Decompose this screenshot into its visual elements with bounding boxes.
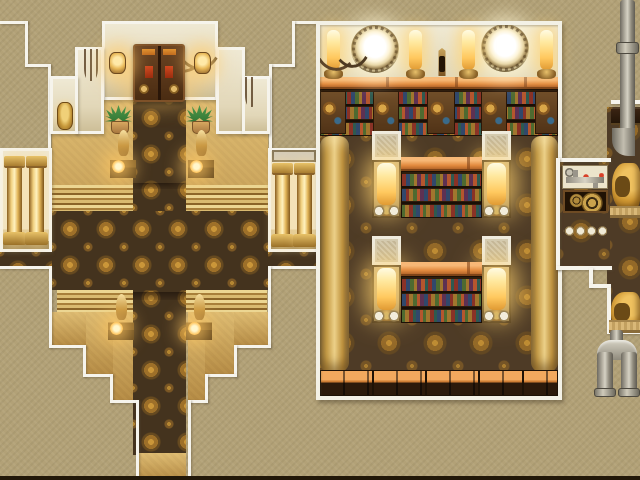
hall-border-bl-8 — [136, 400, 139, 480]
sign-frame-upper-left — [372, 131, 401, 160]
porthole-right-icon — [481, 24, 529, 72]
hall-border-bl-1 — [0, 266, 52, 269]
hall-border-br-8 — [188, 400, 191, 480]
hall-carpet-right-wing — [268, 252, 318, 266]
steam-pipe-vertical — [620, 0, 635, 146]
statue-lamp-lower-left-icon — [108, 294, 134, 340]
entry-double-door[interactable] — [133, 44, 185, 102]
wall-lamp-3-icon — [462, 30, 475, 70]
hall-border-br-3 — [234, 345, 271, 348]
gold-pillar-l2-icon — [29, 156, 44, 245]
hall-border-bl-7 — [110, 400, 139, 403]
sign-frame-lower-right — [482, 236, 511, 265]
library-desk-2[interactable] — [373, 370, 426, 396]
hall-border-bl-5 — [83, 374, 113, 377]
corridor-step-shadow-upper — [133, 183, 186, 189]
sign-frame-upper-right — [482, 131, 511, 160]
gears-picture[interactable] — [563, 190, 608, 213]
center-bookshelf-upper[interactable] — [401, 171, 482, 218]
hall-border-br-4 — [234, 345, 237, 377]
curio-panel-5 — [535, 91, 558, 134]
library-desk-1[interactable] — [320, 370, 373, 396]
medallion-base-lower-left-icon — [373, 309, 400, 323]
medallion-row-icon — [563, 224, 607, 238]
library-vines-icon — [318, 22, 368, 76]
medallion-base-lower-right-icon — [483, 309, 510, 323]
steam-pipe-flange-icon — [616, 42, 639, 54]
library-shelf-top-band — [320, 77, 558, 89]
gold-pillar-r1-icon — [275, 163, 290, 247]
game-map-canvas — [0, 0, 640, 480]
hall-carpet-left-wing — [0, 252, 52, 266]
hanging-vine-right-icon — [245, 77, 257, 107]
curio-panel-4 — [481, 91, 507, 134]
library-desk-5[interactable] — [523, 370, 558, 396]
hall-border-bl-3 — [49, 345, 86, 348]
medallion-base-upper-right-icon — [483, 204, 510, 218]
screen-bottom-shadow — [0, 476, 640, 480]
hall-border-br-7 — [188, 400, 208, 403]
gold-pillar-r2-icon — [297, 163, 312, 247]
hall-border-br-5 — [205, 374, 237, 377]
hall-border-br-6 — [205, 374, 208, 403]
floor-lamp-lower-left-icon — [377, 268, 396, 310]
u-pipe-flange-right-icon — [618, 388, 640, 397]
machine-pipe-panel[interactable] — [562, 165, 608, 189]
door-sconce-left-icon — [109, 52, 126, 74]
gold-pillar-l1-icon — [7, 156, 22, 245]
hall-border-bl-2 — [49, 266, 52, 348]
floor-lamp-lower-right-icon — [487, 268, 506, 310]
hall-border-tr-3 — [269, 64, 295, 67]
floor-lamp-upper-right-icon — [487, 163, 506, 205]
center-bookshelf-lower[interactable] — [401, 276, 482, 323]
library-desk-4[interactable] — [479, 370, 523, 396]
statue-lamp-lower-right-icon — [186, 294, 212, 340]
hall-wall-tier2-right — [216, 47, 245, 134]
statue-lamp-upper-right-icon — [188, 130, 214, 178]
wall-lamp-2-icon — [409, 30, 422, 70]
hall-carpet-area — [52, 211, 268, 290]
corridor-step-shadow-lower — [133, 292, 186, 300]
armchair-rug-upper — [610, 206, 640, 218]
medallion-base-upper-left-icon — [373, 204, 400, 218]
gold-column-right-icon — [531, 136, 558, 372]
hall-border-tr-2 — [292, 21, 295, 67]
sign-frame-lower-left — [372, 236, 401, 265]
hall-border-br-1 — [268, 266, 320, 269]
curio-panel-3 — [427, 91, 455, 134]
curio-panel-1 — [320, 91, 346, 134]
machine-room-border-top — [558, 158, 611, 162]
floor-lamp-upper-left-icon — [377, 163, 396, 205]
statue-lamp-upper-left-icon — [110, 130, 136, 178]
gold-column-left-icon — [320, 136, 349, 372]
hanging-vine-left-icon — [84, 49, 98, 81]
center-shelf-top-upper — [401, 157, 482, 171]
u-pipe-flange-left-icon — [594, 388, 616, 397]
hall-border-tl-2 — [25, 21, 28, 67]
machine-room-border-left — [556, 158, 560, 270]
library-desk-3[interactable] — [426, 370, 479, 396]
wall-lamp-4-icon — [540, 30, 553, 70]
hall-border-tl-1 — [0, 21, 28, 24]
door-sconce-right-icon — [194, 52, 211, 74]
hall-border-bl-4 — [83, 345, 86, 377]
wall-plaque-gold-icon — [57, 102, 73, 130]
curio-panel-2 — [373, 91, 399, 134]
center-shelf-top-lower — [401, 262, 482, 276]
alcove-sign-board — [272, 150, 316, 162]
machine-room-border-bottom — [556, 266, 612, 270]
hall-border-br-2 — [268, 266, 271, 348]
hall-border-bl-6 — [110, 374, 113, 403]
armchair-upper[interactable] — [612, 163, 640, 210]
